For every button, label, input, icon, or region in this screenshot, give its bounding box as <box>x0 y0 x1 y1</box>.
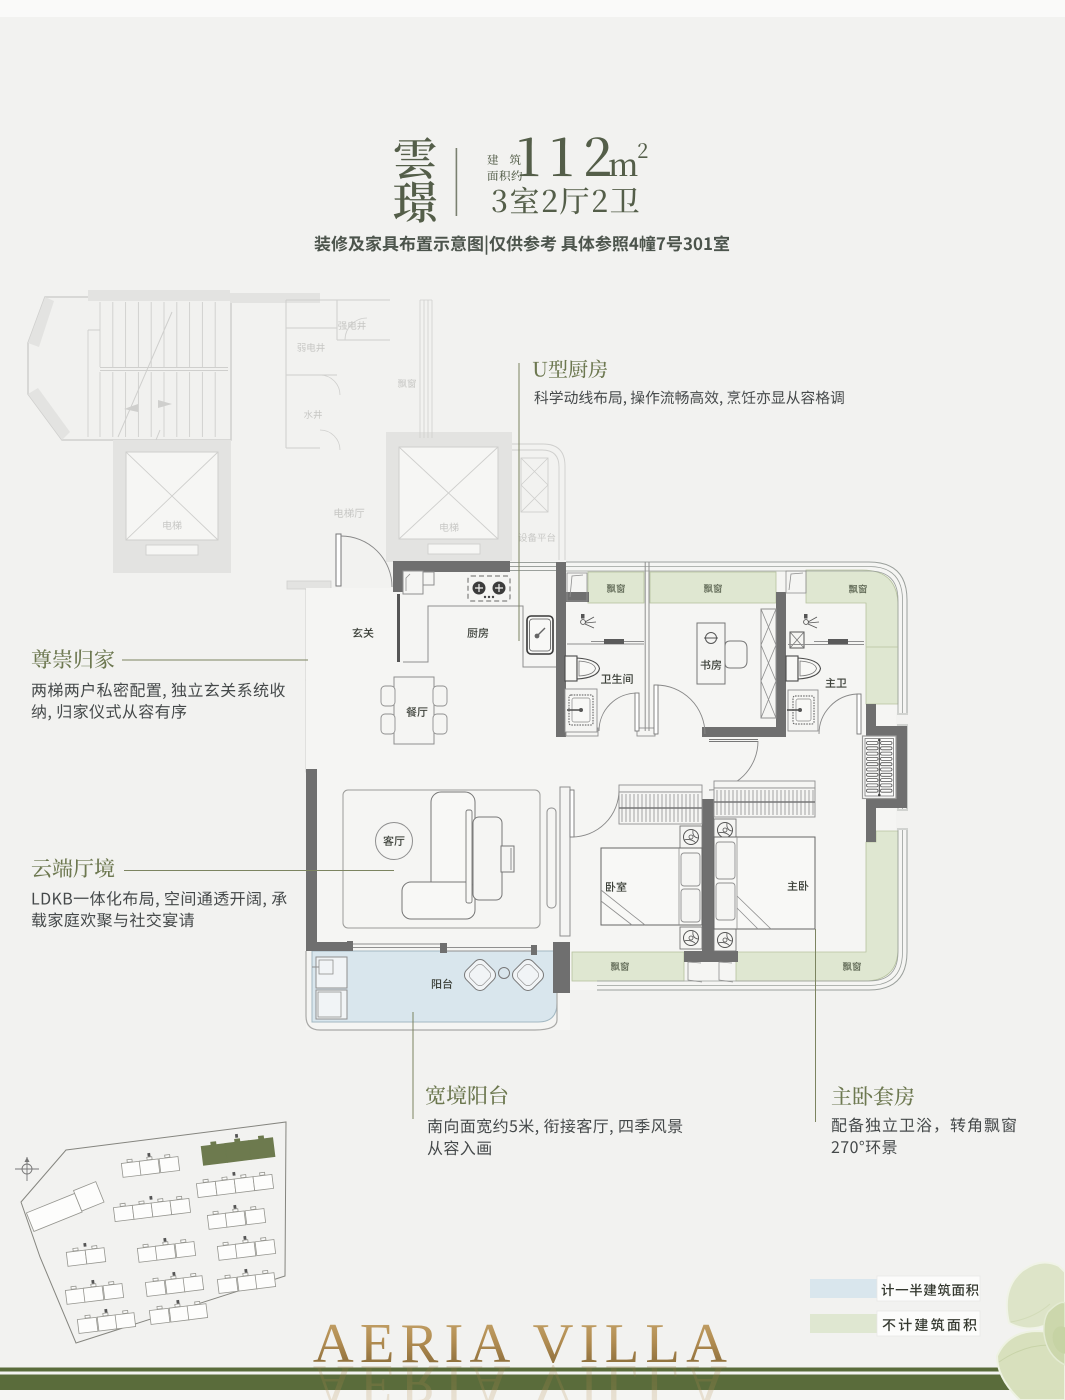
svg-text:AERIA VILLA: AERIA VILLA <box>313 1313 733 1375</box>
